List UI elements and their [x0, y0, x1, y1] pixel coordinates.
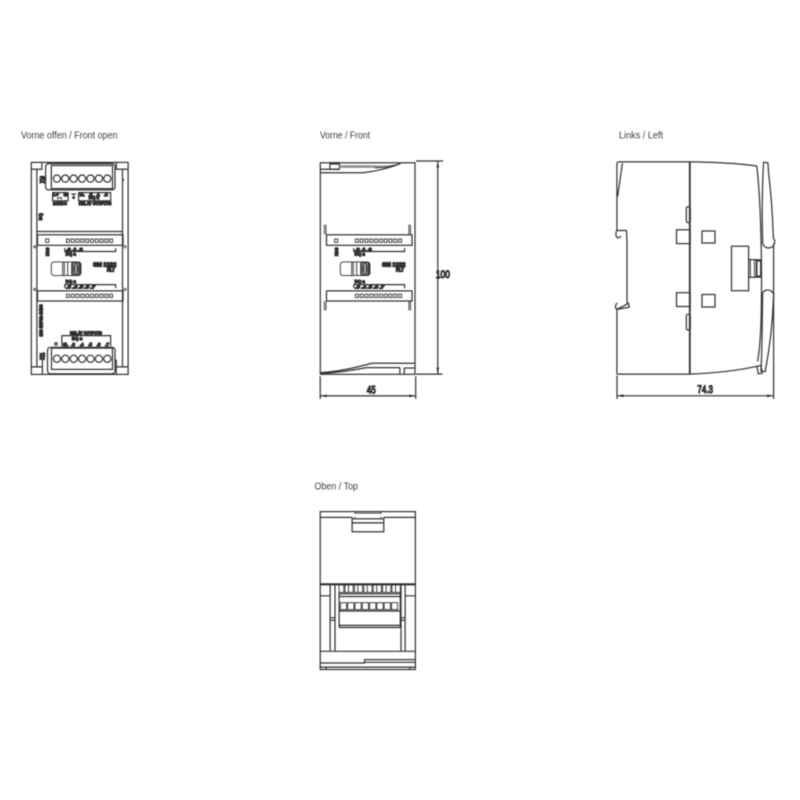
svg-text:Oben / Top: Oben / Top [315, 481, 359, 493]
svg-text:L+: L+ [54, 192, 60, 197]
svg-text:.3 .4 .5 .6 .7: .3 .4 .5 .6 .7 [355, 285, 384, 290]
svg-text:RELAY OUTPUTS: RELAY OUTPUTS [70, 331, 102, 336]
svg-text:Vorne offen / Front open: Vorne offen / Front open [21, 130, 118, 142]
svg-text:.4: .4 [80, 342, 84, 347]
svg-text:X11: X11 [40, 352, 46, 360]
svg-text:.3: .3 [71, 342, 75, 347]
svg-text:X10: X10 [40, 176, 46, 184]
svg-text:RLY: RLY [396, 268, 404, 274]
svg-text:223 1HF32-0XB0: 223 1HF32-0XB0 [38, 304, 43, 337]
svg-text:.5: .5 [88, 342, 92, 347]
svg-text:45: 45 [367, 385, 376, 397]
svg-text:100: 100 [436, 269, 450, 281]
svg-text:74.3: 74.3 [697, 384, 713, 396]
svg-text:DIAG: DIAG [45, 247, 50, 256]
svg-text:24VDC: 24VDC [53, 201, 67, 206]
svg-text:DQ: DQ [38, 213, 43, 220]
svg-text:1L: 1L [80, 192, 85, 197]
svg-text:DQ a: DQ a [72, 336, 83, 341]
svg-text:DQ a: DQ a [355, 252, 366, 257]
svg-text:DQ a: DQ a [66, 279, 77, 284]
svg-text:.2: .2 [104, 192, 108, 197]
svg-text:.6: .6 [97, 342, 101, 347]
svg-text:2L: 2L [63, 342, 68, 347]
svg-text:.3 .4 .5 .6 .7: .3 .4 .5 .6 .7 [66, 285, 95, 290]
svg-text:RLY: RLY [107, 268, 115, 274]
svg-text:DQ a: DQ a [355, 279, 366, 284]
svg-text:DQ a: DQ a [89, 195, 100, 200]
svg-text:DQ a: DQ a [66, 252, 77, 257]
svg-text:.7: .7 [105, 342, 109, 347]
svg-text:Links / Left: Links / Left [619, 130, 663, 142]
svg-text:Vorne / Front: Vorne / Front [320, 130, 370, 142]
svg-text:RELAY OUTPUTS: RELAY OUTPUTS [79, 201, 112, 206]
svg-text:M: M [64, 192, 68, 197]
svg-text:DIAG: DIAG [334, 247, 339, 256]
